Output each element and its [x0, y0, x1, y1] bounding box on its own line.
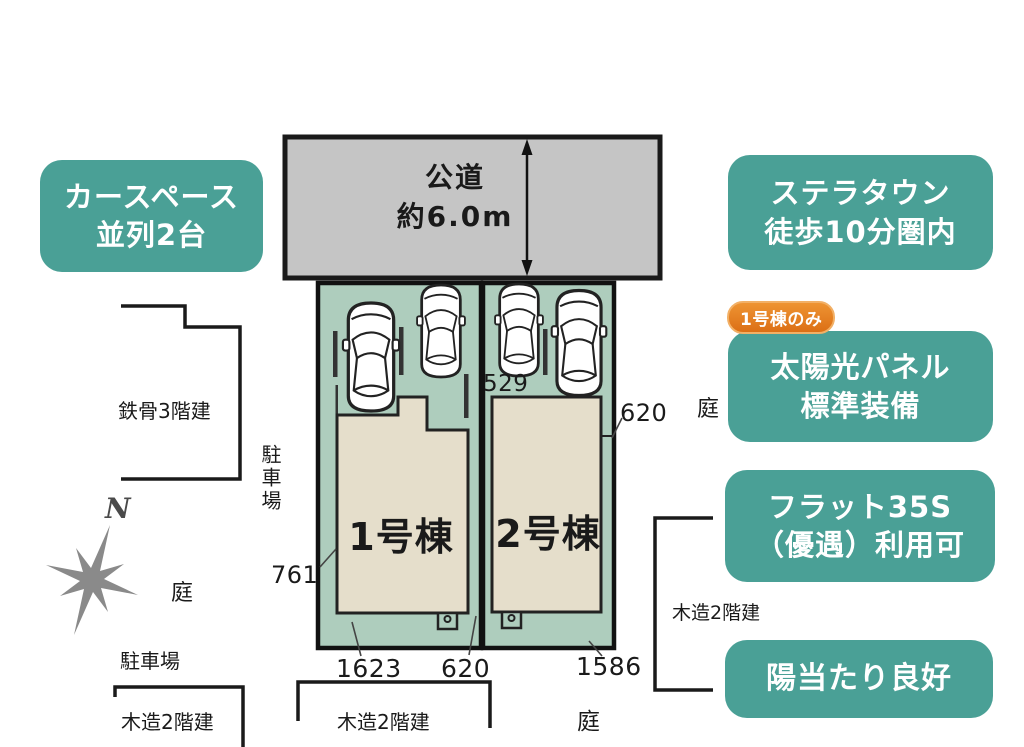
neighbor-steel-building-outline [121, 306, 240, 479]
callout-sunny-line1: 陽当たり良好 [766, 659, 952, 699]
badge-unit1-only: 1号棟のみ [727, 301, 835, 334]
neighbor-wood-right-label: 木造2階建 [672, 598, 760, 625]
dimension-761: 761 [271, 561, 318, 589]
parking-side-label: 駐車場 [256, 444, 285, 513]
garden-right-label: 庭 [697, 391, 719, 423]
callout-car-space-line2: 並列2台 [96, 216, 207, 254]
car-icon [343, 303, 399, 411]
callout-car-space: カースペース 並列2台 [40, 160, 263, 272]
callout-solar-panel: 太陽光パネル 標準装備 [728, 331, 993, 442]
dimension-620-bottom: 620 [441, 654, 490, 683]
building-2-label: 2号棟 [478, 503, 618, 558]
road-label: 公道 約6.0m [370, 158, 540, 236]
compass-north-label: N [105, 492, 131, 525]
neighbor-steel-building-label: 鉄骨3階建 [118, 395, 211, 424]
building-1-outline [337, 397, 468, 613]
dimension-1586: 1586 [576, 652, 642, 681]
dimension-1623: 1623 [336, 654, 402, 683]
neighbor-wood-bottom-center-label: 木造2階建 [337, 706, 430, 735]
callout-sunny: 陽当たり良好 [725, 640, 993, 718]
car-icon [495, 284, 543, 376]
building-1-label: 1号棟 [331, 506, 471, 561]
road-name: 公道 [370, 158, 540, 197]
compass-rose-icon [46, 525, 138, 635]
neighbor-wood-bottom-left-label: 木造2階建 [121, 706, 214, 735]
callout-flat35s-line2: （優遇）利用可 [755, 526, 965, 564]
callout-flat35s-line1: フラット35S [768, 488, 952, 526]
callout-flat35s: フラット35S （優遇）利用可 [725, 470, 995, 582]
car-icon [552, 291, 607, 396]
callout-solar-line1: 太陽光パネル [770, 348, 950, 386]
parking-bottom-label: 駐車場 [120, 645, 180, 674]
car-icon [417, 285, 465, 377]
callout-stella-town: ステラタウン 徒歩10分圏内 [728, 155, 993, 270]
dimension-529: 529 [483, 371, 528, 397]
callout-stella-line2: 徒歩10分圏内 [764, 213, 956, 251]
callout-car-space-line1: カースペース [64, 178, 239, 216]
dimension-620-right: 620 [620, 399, 667, 427]
callout-solar-line2: 標準装備 [800, 387, 920, 425]
garden-left-label: 庭 [171, 575, 193, 607]
site-plan-page: 公道 約6.0m 1号棟 2号棟 529 620 761 1623 620 15… [0, 0, 1024, 747]
road-width: 約6.0m [370, 197, 540, 236]
callout-stella-line1: ステラタウン [770, 174, 950, 212]
garden-bottom-label: 庭 [577, 702, 600, 736]
